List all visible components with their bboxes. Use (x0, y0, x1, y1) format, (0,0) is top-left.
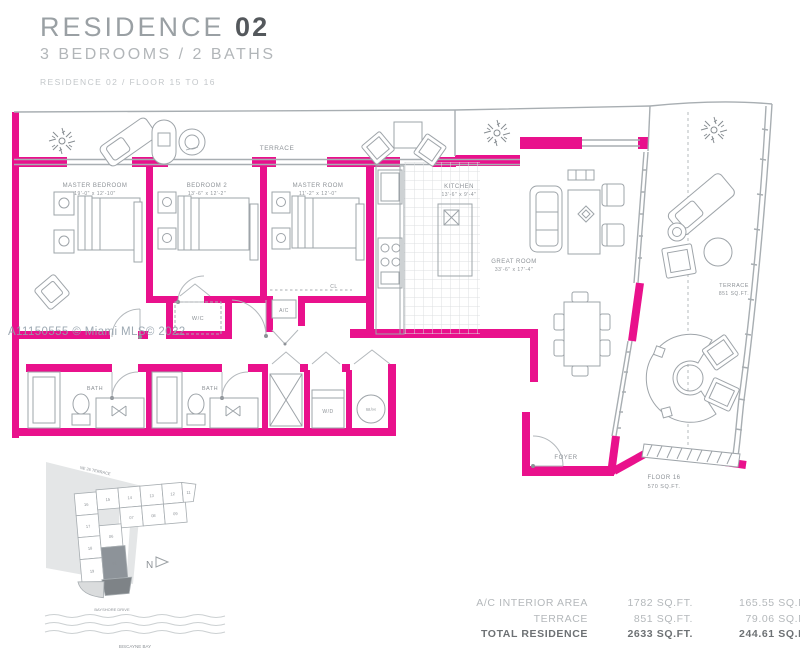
label-wd: W/D (322, 409, 333, 415)
page-title: RESIDENCE 02 (40, 12, 276, 43)
dims-kitchen: 13'-6" x 9'-4" (442, 192, 477, 198)
right-terrace-furniture (642, 172, 740, 467)
area-floor16: 570 SQ.FT. (648, 484, 681, 490)
bedroom2-furniture (158, 192, 258, 260)
label-great-room: GREAT ROOM (491, 259, 536, 265)
area-row-sqm: 79.06 SQ.M. (695, 612, 800, 628)
keyplan: NE 26 TERRACE 16 17 18 19 15 (45, 462, 225, 649)
walls (12, 112, 648, 476)
dims-great-room: 33'-6" x 17'-4" (495, 267, 533, 273)
plant-icon (49, 128, 75, 154)
label-terrace-right: TERRACE (719, 283, 749, 289)
label-wh: W/H (366, 407, 376, 412)
bath-fixtures (28, 372, 385, 428)
floor-note: RESIDENCE 02 / FLOOR 15 TO 16 (40, 77, 276, 87)
label-master-bedroom: MASTER BEDROOM (63, 183, 128, 189)
total-row-label: TOTAL RESIDENCE (440, 627, 590, 643)
label-terrace-top: TERRACE (260, 145, 295, 152)
keyplan-bay-label: BISCAYNE BAY (119, 644, 151, 649)
residence-number: 02 (235, 12, 269, 42)
dims-master-room: 11'-2" x 12'-0" (299, 191, 337, 197)
mls-watermark: A11150555 © Miami MLS© 2022 (8, 326, 186, 338)
floorplan-page: RESIDENCE 02 3 BEDROOMS / 2 BATHS RESIDE… (0, 0, 800, 666)
dims-master-bedroom: 19'-0" x 12'-10" (74, 191, 116, 197)
area-row-label: TERRACE (440, 612, 590, 628)
compass-arrow-icon (156, 557, 168, 567)
walls-slanted (611, 283, 746, 474)
label-cl: CL (330, 284, 337, 290)
plant-icon (484, 120, 510, 146)
compass-n: N (146, 560, 153, 571)
label-ac: A/C (279, 308, 289, 314)
area-summary-table: A/C INTERIOR AREA 1782 SQ.FT. 165.55 SQ.… (440, 596, 800, 643)
area-row-sqm: 165.55 SQ.M. (695, 596, 800, 612)
bed-bath-subtitle: 3 BEDROOMS / 2 BATHS (40, 46, 276, 64)
label-foyer: FOYER (554, 455, 577, 461)
label-kitchen: KITCHEN (444, 184, 474, 190)
dims-bedroom2: 13'-6" x 12'-2" (188, 191, 226, 197)
total-row-sqm: 244.61 SQ.M. (695, 627, 800, 643)
plant-icon (701, 117, 727, 143)
master-bedroom-furniture (34, 192, 142, 310)
label-bath1: BATH (87, 386, 103, 392)
label-bedroom2: BEDROOM 2 (187, 183, 228, 189)
area-row-label: A/C INTERIOR AREA (440, 596, 590, 612)
water-waves (45, 615, 225, 634)
keyplan-drive-label: BAYSHORE DRIVE (94, 607, 130, 612)
header: RESIDENCE 02 3 BEDROOMS / 2 BATHS RESIDE… (40, 12, 276, 87)
area-row-sqft: 1782 SQ.FT. (590, 596, 695, 612)
master-room-furniture (272, 192, 364, 260)
label-bath2: BATH (202, 386, 218, 392)
label-floor16: FLOOR 16 (647, 475, 680, 481)
area-row-sqft: 851 SQ.FT. (590, 612, 695, 628)
great-room-furniture (530, 170, 624, 376)
label-wc: W/C (192, 316, 204, 322)
residence-label: RESIDENCE (40, 12, 225, 42)
label-master-room: MASTER ROOM (293, 183, 344, 189)
area-terrace-right: 851 SQ.FT. (719, 291, 749, 297)
total-row-sqft: 2633 SQ.FT. (590, 627, 695, 643)
